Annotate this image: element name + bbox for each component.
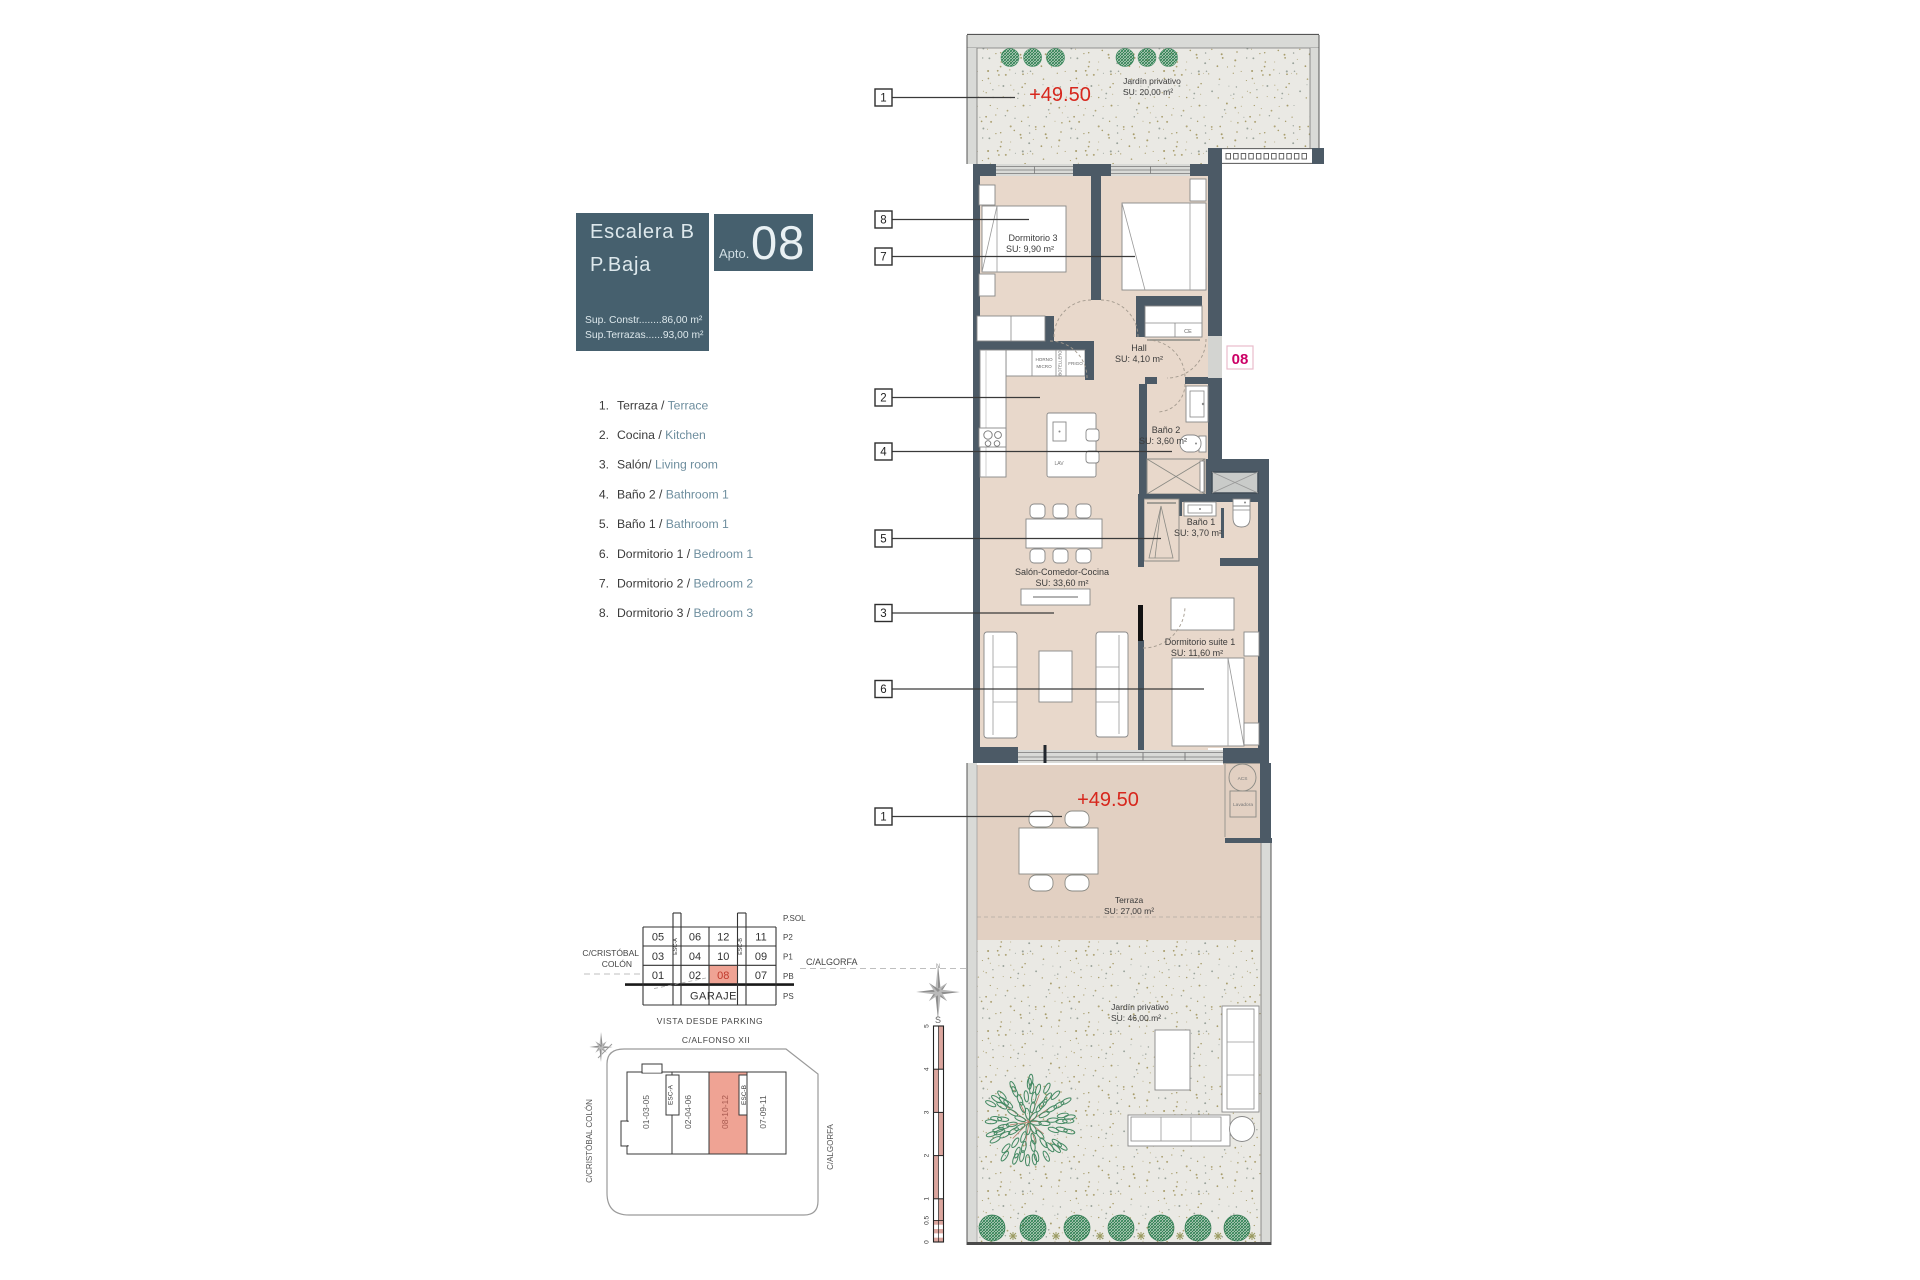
- svg-text:2: 2: [880, 393, 886, 405]
- svg-text:03: 03: [652, 951, 664, 963]
- svg-text:C/ALFONSO XII: C/ALFONSO XII: [682, 1035, 750, 1045]
- svg-text:6.: 6.: [599, 547, 609, 561]
- svg-text:04: 04: [689, 951, 701, 963]
- svg-text:Cocina / Kitchen: Cocina / Kitchen: [617, 428, 706, 442]
- svg-text:LAV: LAV: [1054, 461, 1064, 467]
- svg-text:Baño 2 / Bathroom 1: Baño 2 / Bathroom 1: [617, 487, 729, 501]
- svg-text:Baño 1 / Bathroom 1: Baño 1 / Bathroom 1: [617, 517, 729, 531]
- svg-text:1: 1: [880, 812, 886, 824]
- svg-text:GARAJE: GARAJE: [690, 991, 737, 1003]
- svg-text:08: 08: [751, 216, 805, 269]
- svg-text:7.: 7.: [599, 577, 609, 591]
- svg-text:12: 12: [717, 932, 729, 944]
- svg-text:2: 2: [924, 1153, 931, 1157]
- svg-text:SU: 33,60 m²: SU: 33,60 m²: [1035, 578, 1088, 588]
- svg-text:Hall: Hall: [1131, 343, 1147, 353]
- svg-text:MICRO: MICRO: [1036, 364, 1052, 369]
- svg-text:0.5: 0.5: [924, 1216, 931, 1225]
- svg-text:5: 5: [880, 534, 886, 546]
- svg-text:Escalera B: Escalera B: [590, 221, 695, 243]
- svg-text:01-03-05: 01-03-05: [641, 1095, 651, 1129]
- svg-text:Dormitorio 2 / Bedroom 2: Dormitorio 2 / Bedroom 2: [617, 577, 753, 591]
- svg-text:6: 6: [880, 684, 886, 696]
- svg-text:SU: 3,60 m²: SU: 3,60 m²: [1139, 436, 1187, 446]
- svg-text:07: 07: [755, 970, 767, 982]
- svg-text:4: 4: [924, 1067, 931, 1071]
- svg-text:VISTA DESDE PARKING: VISTA DESDE PARKING: [657, 1016, 764, 1026]
- svg-text:8: 8: [880, 215, 886, 227]
- svg-text:P2: P2: [783, 933, 793, 942]
- svg-text:1.: 1.: [599, 398, 609, 412]
- svg-text:PS: PS: [783, 992, 794, 1001]
- svg-text:Sup. Constr........86,00 m²: Sup. Constr........86,00 m²: [585, 315, 703, 326]
- svg-text:Dormitorio 3 / Bedroom 3: Dormitorio 3 / Bedroom 3: [617, 606, 753, 620]
- svg-text:Dormitorio suite 1: Dormitorio suite 1: [1165, 637, 1236, 647]
- svg-text:08: 08: [1232, 351, 1249, 368]
- svg-text:3.: 3.: [599, 458, 609, 472]
- svg-text:01: 01: [652, 970, 664, 982]
- svg-text:COLÓN: COLÓN: [602, 959, 632, 969]
- svg-text:+49.50: +49.50: [1029, 84, 1091, 106]
- svg-text:06: 06: [689, 932, 701, 944]
- svg-text:11: 11: [755, 932, 766, 944]
- svg-text:1: 1: [880, 93, 886, 105]
- svg-text:1: 1: [924, 1197, 931, 1201]
- svg-text:Salón-Comedor-Cocina: Salón-Comedor-Cocina: [1015, 567, 1109, 577]
- svg-text:SU: 11,60 m²: SU: 11,60 m²: [1171, 648, 1223, 658]
- svg-text:SU: 20,00 m²: SU: 20,00 m²: [1123, 87, 1173, 97]
- svg-text:SU: 3,70 m²: SU: 3,70 m²: [1174, 528, 1222, 538]
- svg-text:C/CRISTÓBAL: C/CRISTÓBAL: [582, 948, 639, 958]
- svg-text:5.: 5.: [599, 517, 609, 531]
- svg-text:N: N: [936, 964, 940, 970]
- svg-text:SU: 9,90 m²: SU: 9,90 m²: [1006, 244, 1054, 254]
- svg-text:5: 5: [924, 1024, 931, 1028]
- svg-text:Baño 1: Baño 1: [1187, 517, 1216, 527]
- svg-text:4.: 4.: [599, 487, 609, 501]
- svg-text:10: 10: [717, 951, 729, 963]
- svg-text:Sup.Terrazas......93,00 m²: Sup.Terrazas......93,00 m²: [585, 330, 704, 341]
- svg-text:S: S: [935, 1015, 941, 1025]
- svg-text:Dormitorio 1 / Bedroom 1: Dormitorio 1 / Bedroom 1: [617, 547, 753, 561]
- svg-text:8.: 8.: [599, 606, 609, 620]
- svg-text:08: 08: [717, 970, 729, 982]
- svg-text:3: 3: [924, 1110, 931, 1114]
- svg-text:ACS: ACS: [1238, 776, 1248, 782]
- svg-text:ESC-A: ESC-A: [668, 1084, 675, 1105]
- svg-text:Baño 2: Baño 2: [1152, 425, 1181, 435]
- svg-text:3: 3: [880, 608, 886, 620]
- svg-text:P.SOL: P.SOL: [783, 914, 806, 923]
- svg-text:Salón/ Living room: Salón/ Living room: [617, 458, 718, 472]
- svg-text:08-10-12: 08-10-12: [720, 1095, 730, 1129]
- svg-text:Apto.: Apto.: [719, 246, 749, 261]
- svg-text:+49.50: +49.50: [1077, 789, 1139, 811]
- svg-text:SU: 4,10 m²: SU: 4,10 m²: [1115, 354, 1163, 364]
- svg-text:2.: 2.: [599, 428, 609, 442]
- svg-text:BOTELLERO: BOTELLERO: [1058, 350, 1063, 376]
- svg-text:Dormitorio 3: Dormitorio 3: [1008, 233, 1057, 243]
- svg-text:HORNO: HORNO: [1035, 357, 1053, 362]
- svg-text:0: 0: [924, 1240, 931, 1244]
- svg-text:09: 09: [755, 951, 767, 963]
- svg-text:P.Baja: P.Baja: [590, 254, 651, 276]
- svg-text:FRIGO: FRIGO: [1068, 361, 1083, 366]
- svg-text:4: 4: [880, 447, 887, 459]
- svg-text:7: 7: [880, 252, 886, 264]
- svg-text:SU: 46,00.m²: SU: 46,00.m²: [1111, 1013, 1161, 1023]
- svg-text:02-04-06: 02-04-06: [683, 1095, 693, 1129]
- svg-text:Jardín privativo: Jardín privativo: [1123, 76, 1181, 86]
- svg-text:C/CRISTÓBAL COLÓN: C/CRISTÓBAL COLÓN: [585, 1099, 594, 1183]
- svg-text:C/ALGORFA: C/ALGORFA: [826, 1123, 835, 1169]
- svg-text:05: 05: [652, 932, 664, 944]
- svg-text:Terraza / Terrace: Terraza / Terrace: [617, 398, 708, 412]
- svg-text:ESC-B: ESC-B: [741, 1085, 748, 1105]
- svg-text:PB: PB: [783, 972, 794, 981]
- svg-text:Jardín privativo: Jardín privativo: [1111, 1002, 1169, 1012]
- svg-text:SU: 27,00 m²: SU: 27,00 m²: [1104, 906, 1154, 916]
- svg-text:Terraza: Terraza: [1115, 895, 1144, 905]
- svg-text:P1: P1: [783, 953, 793, 962]
- svg-text:Lavadora: Lavadora: [1233, 802, 1253, 808]
- svg-text:CE: CE: [1184, 329, 1192, 335]
- svg-text:02: 02: [689, 970, 701, 982]
- svg-text:07-09-11: 07-09-11: [758, 1095, 768, 1129]
- svg-text:ESC-A: ESC-A: [673, 938, 679, 955]
- svg-text:ESC-B: ESC-B: [738, 938, 744, 955]
- svg-text:C/ALGORFA: C/ALGORFA: [806, 957, 858, 967]
